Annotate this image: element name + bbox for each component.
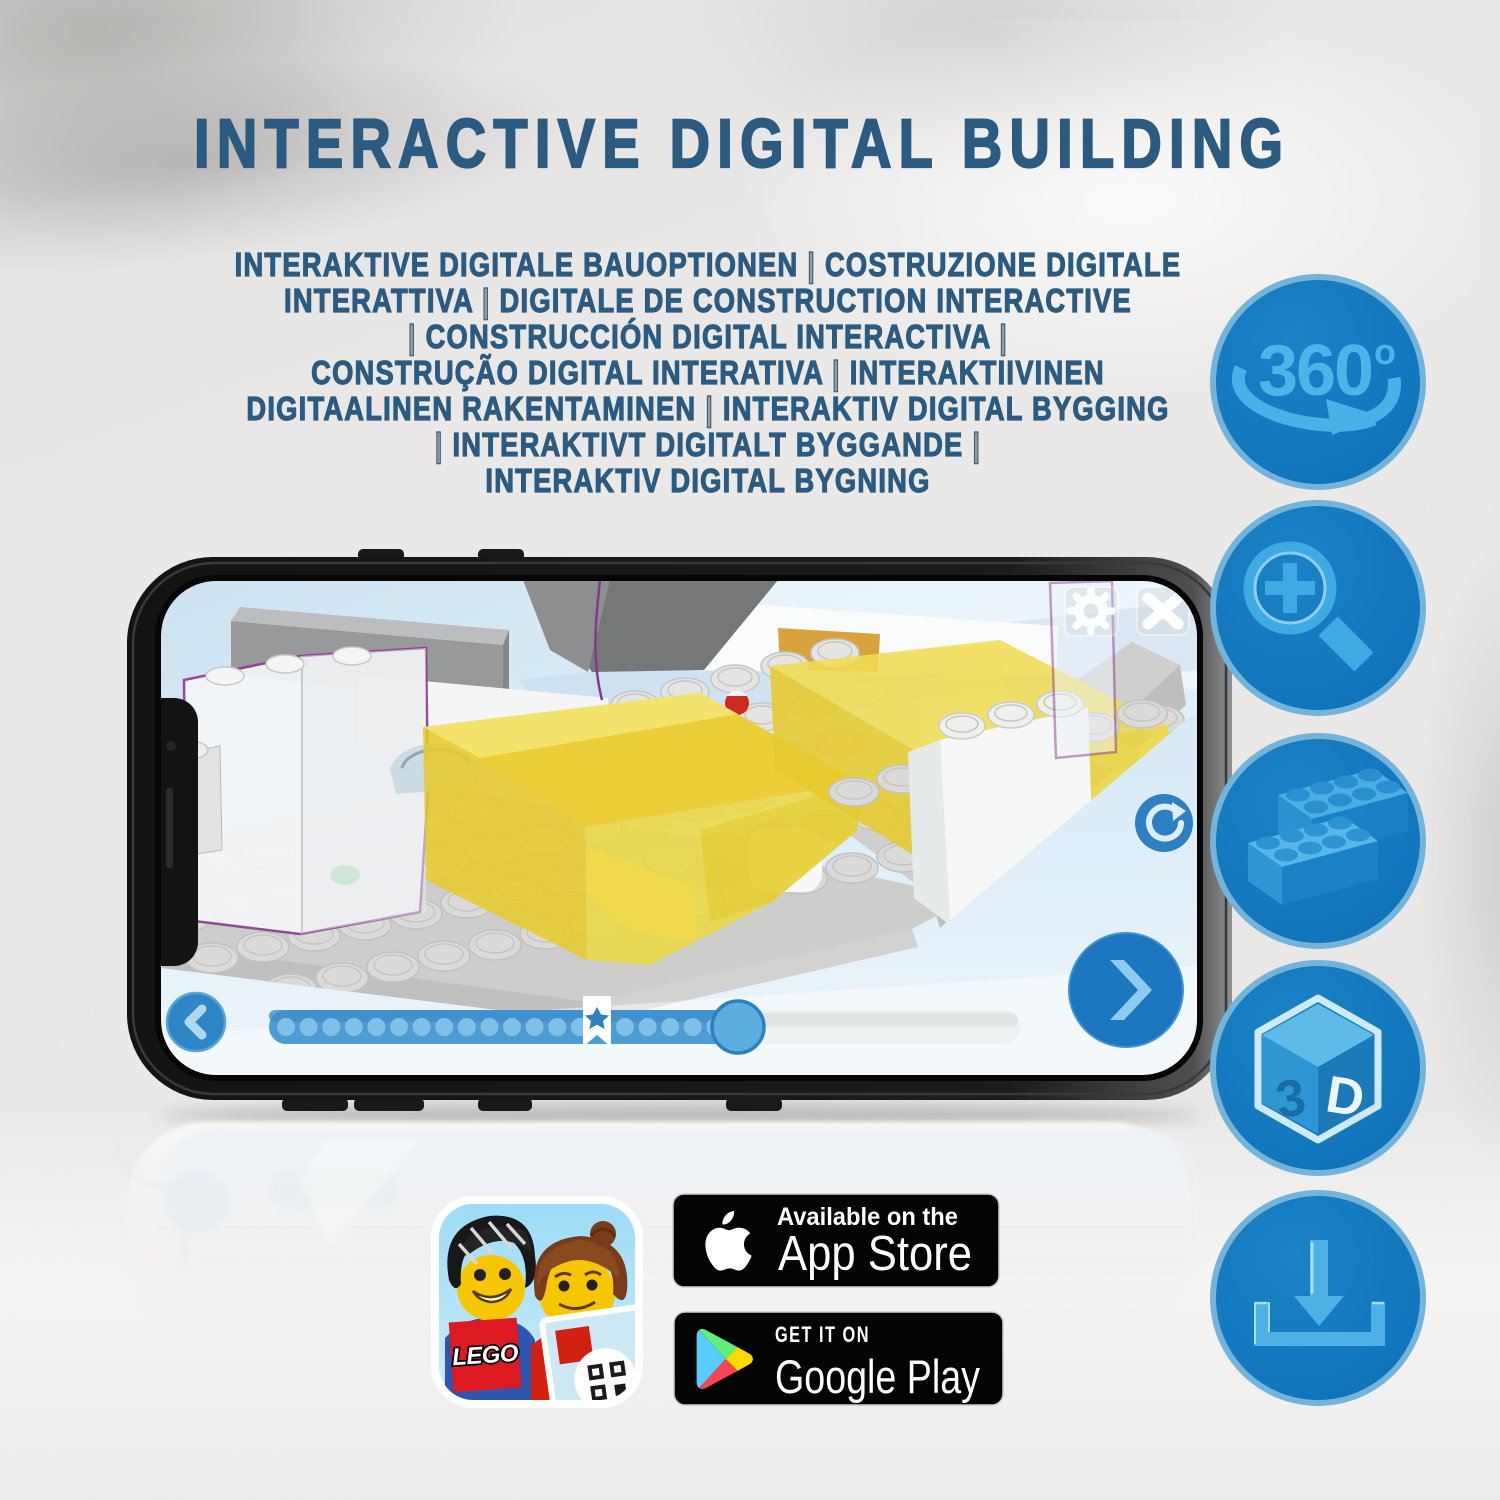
svg-text:GET IT ON: GET IT ON <box>775 1322 870 1347</box>
svg-text:App Store: App Store <box>778 1227 972 1281</box>
svg-text:360: 360 <box>1258 331 1372 411</box>
svg-text:LEGO: LEGO <box>451 1340 520 1372</box>
svg-text:Google Play: Google Play <box>775 1350 980 1403</box>
svg-text:o: o <box>1374 331 1396 372</box>
